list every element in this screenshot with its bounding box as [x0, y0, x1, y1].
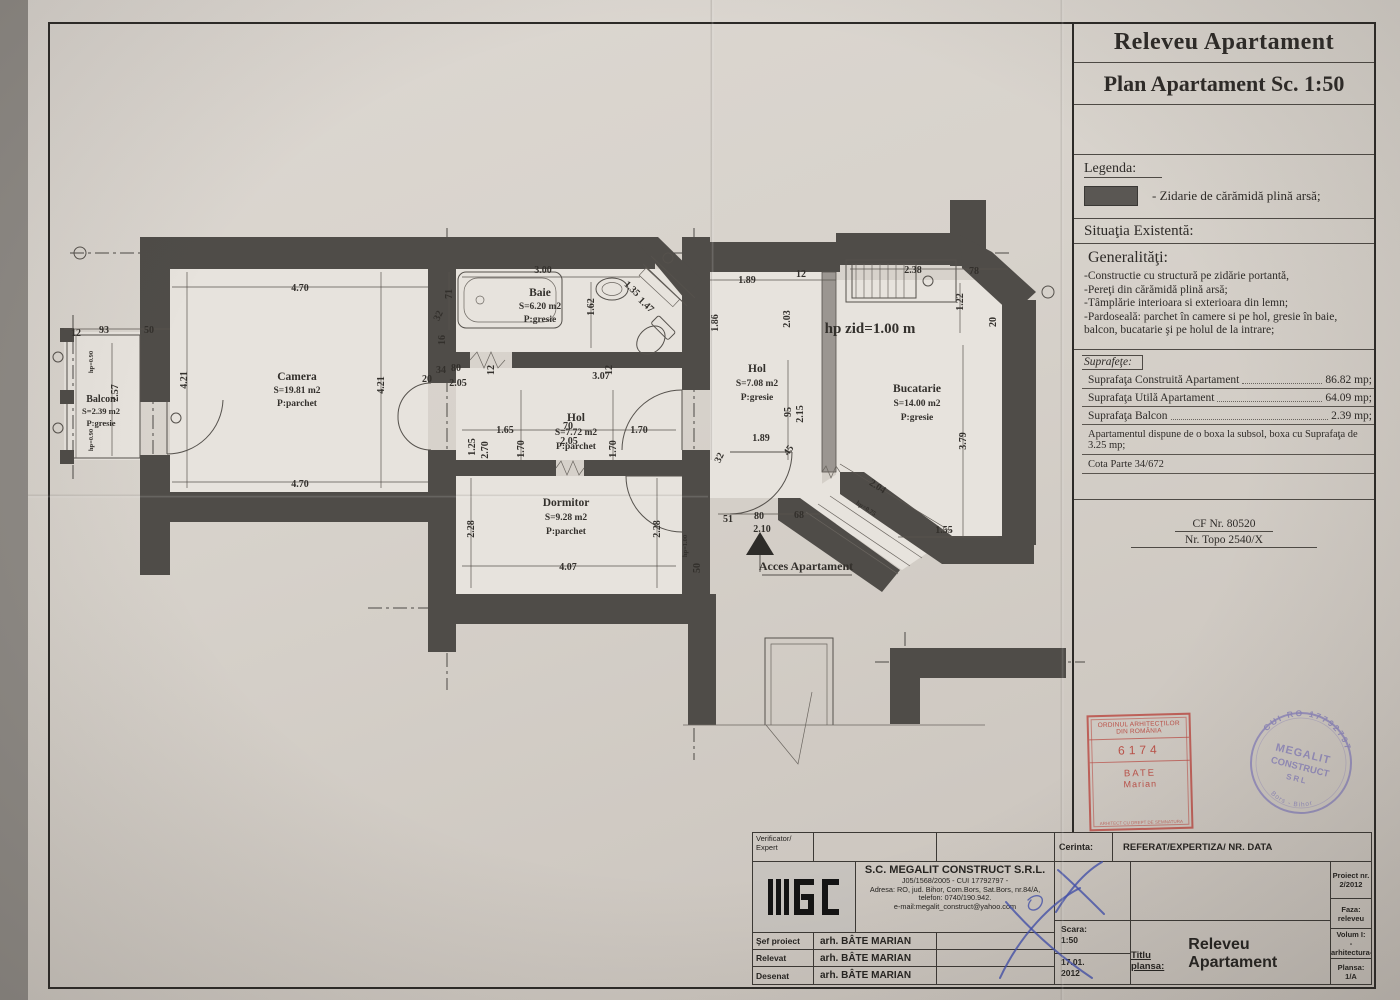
dim-label: 4.70 [291, 283, 309, 294]
room-area: S=2.39 m2 [82, 406, 120, 416]
faza-label: Faza: [1331, 905, 1371, 914]
dim-label: 1.89 [752, 433, 770, 444]
mgc-logo-cell [752, 861, 856, 933]
legend-label: Legenda: [1084, 161, 1162, 178]
scanned-floor-plan-photo: { "panel": { "title1": "Releveu Apartame… [0, 0, 1400, 1000]
dim-label: 3.00 [534, 265, 552, 276]
dim-label: hp=0.90 [88, 429, 95, 451]
access-label: Acces Apartament [759, 559, 853, 573]
generalitati-line: -Constructie cu structură pe zidărie por… [1084, 270, 1364, 284]
name-sef-proiect: arh. BÂTE MARIAN [813, 932, 937, 950]
suprafete-row: Suprafaţa Balcon 2.39 mp; [1082, 407, 1374, 425]
titlu-label: Titlu plansa: [1131, 950, 1182, 972]
suprafete-value: 2.39 mp; [1331, 410, 1372, 422]
date-line1: 17.01. [1061, 957, 1085, 967]
cf-section: CF Nr. 80520 Nr. Topo 2540/X [1074, 500, 1374, 548]
faza-cell: Faza: releveu [1330, 898, 1372, 929]
dim-label: hp=1.00 [682, 535, 689, 557]
empty-cell [1054, 861, 1131, 921]
dim-label: 20 [422, 374, 432, 385]
date-line2: 2012 [1061, 968, 1080, 978]
suprafete-name: Suprafaţa Construită Apartament [1088, 374, 1239, 386]
titlu-plansa-cell: Titlu plansa: Releveu Apartament [1130, 920, 1331, 985]
volum-cell: Volum I: -arhitectura- [1330, 928, 1372, 959]
dim-label: 2.28 [652, 520, 663, 538]
faza-value: releveu [1331, 914, 1371, 923]
dim-label: 68 [794, 510, 804, 521]
dim-label: 4.07 [559, 562, 577, 573]
dim-label: 34 [436, 365, 446, 376]
generalitati-line: -Tâmplărie interioara si exterioara din … [1084, 297, 1364, 311]
dim-label: 1.89 [738, 275, 756, 286]
dim-label: 12 [796, 269, 806, 280]
room-floor: P:gresie [741, 393, 774, 403]
dim-label: 51 [723, 514, 733, 525]
legend-item: - Zidarie de cărămidă plină arsă; [1152, 188, 1321, 204]
verificator-cell: Verificator/ Expert [752, 832, 814, 862]
room-floor: P:parchet [277, 399, 318, 409]
dim-label: 20 [988, 317, 999, 327]
cerinta-label-cell: Cerinta: [1054, 832, 1113, 862]
room-label-hol-intrare: Hol [748, 363, 766, 375]
generalitati-section: Generalităţi: -Constructie cu structură … [1074, 244, 1374, 350]
role-sef-proiect: Şef proiect [752, 932, 814, 950]
room-floor: P:gresie [86, 418, 115, 428]
dim-label: 1.70 [608, 440, 619, 458]
dotted-leader [1242, 383, 1322, 384]
suprafete-label: Suprafeţe: [1082, 355, 1143, 370]
room-label-dormitor: Dormitor [543, 497, 590, 509]
brick-wall-swatch [1084, 186, 1138, 206]
room-floor: P:gresie [901, 413, 934, 423]
dim-label: 3.07 [592, 371, 610, 382]
room-floor: P:parchet [546, 527, 587, 537]
room-area: S=14.00 m2 [893, 399, 940, 409]
proiect-label: Proiect nr. [1331, 871, 1371, 880]
dim-label: 2.38 [904, 265, 922, 276]
signature-cell [936, 932, 1055, 950]
suprafete-row: Suprafaţa Utilă Apartament 64.09 mp; [1082, 389, 1374, 407]
signature-cell [936, 966, 1055, 985]
titlu-value: Releveu Apartament [1188, 936, 1330, 972]
dim-label: 1.86 [710, 314, 721, 332]
empty-box [1074, 105, 1374, 155]
dim-label: 1.55 [935, 525, 953, 536]
dim-label: 2.70 [480, 441, 491, 459]
suprafete-name: Suprafaţa Balcon [1088, 410, 1168, 422]
dim-label: 80 [451, 363, 461, 374]
dim-label: 50 [692, 563, 703, 573]
dim-label: 1.65 [496, 425, 514, 436]
volum-label: Volum I: [1331, 930, 1371, 939]
suprafete-name: Suprafaţa Utilă Apartament [1088, 392, 1214, 404]
room-area: S=6.20 m2 [519, 302, 562, 312]
cf-number: CF Nr. 80520 [1175, 518, 1274, 532]
room-area: S=7.72 m2 [555, 428, 598, 438]
room-label-camera: Camera [277, 371, 317, 383]
suprafete-value: 86.82 mp; [1325, 374, 1372, 386]
scara-value: 1:50 [1061, 935, 1078, 945]
dim-label: 1.25 [467, 438, 478, 456]
room-area: S=9.28 m2 [545, 513, 588, 523]
empty-cell [1130, 861, 1331, 921]
role-relevat: Relevat [752, 949, 814, 967]
boxa-note: Apartamentul dispune de o boxa la subsol… [1082, 425, 1374, 455]
proiect-value: 2/2012 [1331, 880, 1371, 889]
legend-section: Legenda: - Zidarie de cărămidă plină ars… [1074, 155, 1374, 219]
dim-label: 4.70 [291, 479, 309, 490]
low-parapet-wall [822, 272, 836, 472]
info-panel: Releveu Apartament Plan Apartament Sc. 1… [1072, 22, 1374, 832]
room-label-baie: Baie [529, 287, 551, 299]
dim-label: 93 [99, 325, 109, 336]
dim-label: 1.70 [630, 425, 648, 436]
room-label-bucatarie: Bucatarie [893, 383, 941, 395]
volum-value: -arhitectura- [1331, 939, 1371, 957]
generalitati-line: -Pardoseală: parchet în camere si pe hol… [1084, 311, 1364, 338]
mgc-logo [768, 878, 840, 916]
situatia-heading: Situaţia Existentă: [1074, 219, 1374, 244]
proiect-nr-cell: Proiect nr. 2/2012 [1330, 861, 1372, 899]
name-desenat: arh. BÂTE MARIAN [813, 966, 937, 985]
dim-label: 12 [71, 328, 81, 339]
drawing-subtitle: Plan Apartament Sc. 1:50 [1074, 63, 1374, 105]
room-floor: P:gresie [524, 315, 557, 325]
company-email: e-mail:megalit_construct@yahoo.com [856, 903, 1054, 912]
dotted-leader [1171, 419, 1329, 420]
dim-label: 2.03 [782, 310, 793, 328]
dim-label: 71 [444, 289, 455, 299]
dim-label: 4.21 [179, 371, 190, 389]
room-label-balcon: Balcon [86, 394, 116, 405]
parapet-height-note: hp zid=1.00 m [825, 321, 916, 337]
suprafete-section: Suprafeţe: Suprafaţa Construită Apartame… [1074, 350, 1374, 500]
dim-label: 78 [969, 266, 979, 277]
dim-label: 1.70 [516, 440, 527, 458]
dim-label: hp=0.90 [88, 351, 95, 373]
dim-label: 4.21 [376, 376, 387, 394]
dim-label: 2.05 [449, 378, 467, 389]
dim-label: 3.79 [958, 432, 969, 450]
role-desenat: Desenat [752, 966, 814, 985]
title-block: Verificator/ Expert Cerinta: REFERAT/EXP… [752, 832, 1372, 985]
empty-cell [936, 832, 1055, 862]
name-relevat: arh. BÂTE MARIAN [813, 949, 937, 967]
dotted-leader [1217, 401, 1322, 402]
company-cell: S.C. MEGALIT CONSTRUCT S.R.L. J05/1568/2… [855, 861, 1055, 933]
signature-cell [936, 949, 1055, 967]
date-cell: 17.01. 2012 [1054, 953, 1131, 985]
suprafete-row: Suprafaţa Construită Apartament 86.82 mp… [1082, 371, 1374, 389]
dim-label: 2.15 [795, 405, 806, 423]
plansa-value: 1/A [1331, 972, 1371, 981]
room-area: S=19.81 m2 [273, 386, 320, 396]
scara-label: Scara: [1061, 924, 1087, 934]
room-area: S=7.08 m2 [736, 379, 779, 389]
oar-architect-stamp: ORDINUL ARHITECŢILOR DIN ROMÂNIA 6174 BA… [1086, 713, 1193, 832]
cerinta-value-cell: REFERAT/EXPERTIZA/ NR. DATA [1112, 832, 1372, 862]
dim-label: 2.10 [753, 524, 771, 535]
drawing-title: Releveu Apartament [1074, 22, 1374, 63]
topo-number: Nr. Topo 2540/X [1131, 534, 1317, 548]
dim-label: 2.28 [466, 520, 477, 538]
dim-label: 16 [437, 335, 448, 345]
plansa-label: Plansa: [1331, 963, 1371, 972]
room-label-hol: Hol [567, 412, 585, 424]
dim-label: 95 [783, 407, 794, 417]
dim-label: 80 [754, 511, 764, 522]
dim-label: 50 [144, 325, 154, 336]
company-name: S.C. MEGALIT CONSTRUCT S.R.L. [856, 865, 1054, 875]
generalitati-heading: Generalităţi: [1088, 249, 1364, 267]
stamp-inner-border [1091, 717, 1190, 827]
room-floor: P:parchet [556, 442, 597, 452]
scara-cell: Scara: 1:50 [1054, 920, 1131, 954]
plansa-cell: Plansa: 1/A [1330, 958, 1372, 985]
dim-label: 12 [486, 365, 497, 375]
generalitati-line: -Pereţi din cărămidă plină arsă; [1084, 284, 1364, 298]
empty-cell [813, 832, 937, 862]
cota-parte: Cota Parte 34/672 [1082, 455, 1374, 474]
dim-label: 1.22 [955, 293, 966, 311]
dim-label: 1.62 [586, 298, 597, 316]
suprafete-value: 64.09 mp; [1325, 392, 1372, 404]
